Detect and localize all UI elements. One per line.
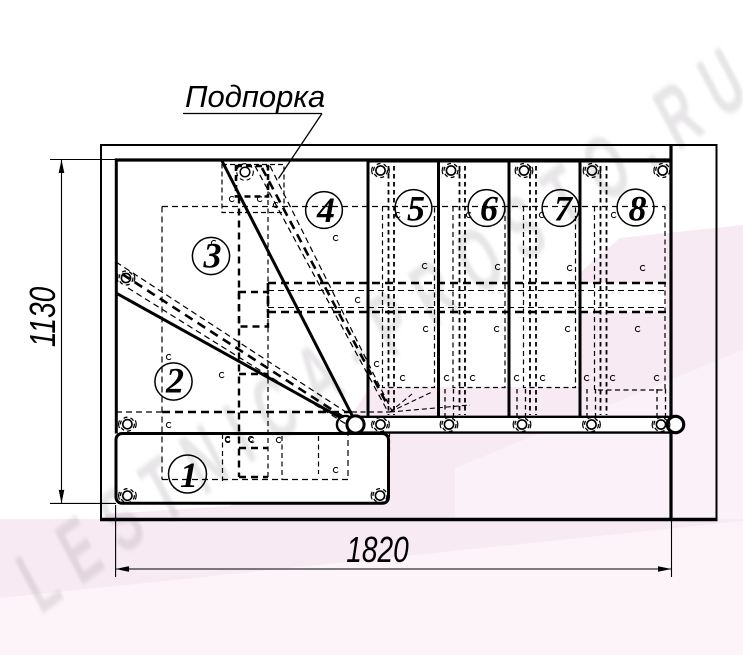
svg-text:6: 6 — [480, 189, 498, 229]
svg-text:1130: 1130 — [23, 287, 63, 347]
svg-text:3: 3 — [203, 236, 222, 276]
svg-text:5: 5 — [407, 189, 425, 229]
svg-text:1: 1 — [180, 455, 198, 495]
svg-text:2: 2 — [165, 361, 184, 401]
svg-text:8: 8 — [629, 189, 647, 229]
svg-text:7: 7 — [554, 189, 574, 229]
svg-text:Подпорка: Подпорка — [185, 79, 325, 114]
svg-text:1820: 1820 — [346, 530, 408, 570]
svg-text:4: 4 — [316, 190, 335, 230]
